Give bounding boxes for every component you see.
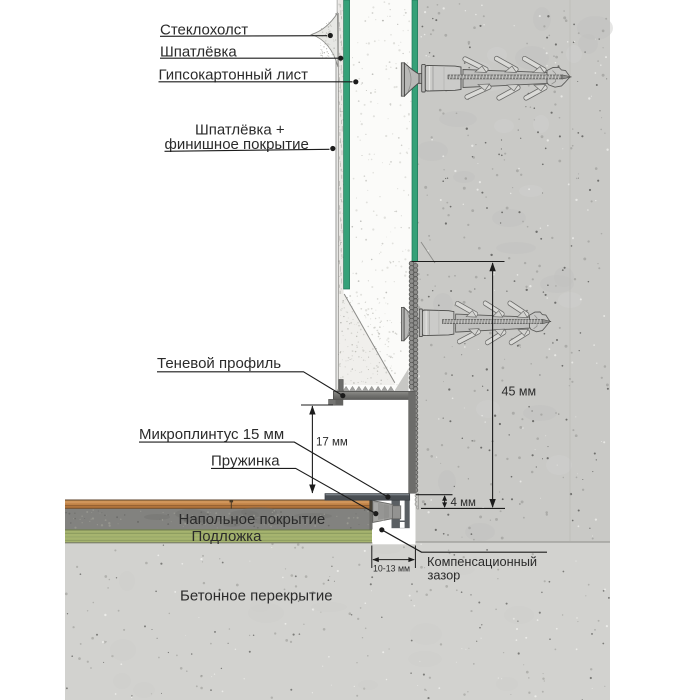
svg-text:Микроплинтус 15 мм: Микроплинтус 15 мм <box>139 426 284 443</box>
svg-text:17 мм: 17 мм <box>316 437 348 449</box>
svg-text:Подложка: Подложка <box>192 528 263 545</box>
svg-text:Бетонное перекрытие: Бетонное перекрытие <box>180 588 333 605</box>
svg-text:Теневой профиль: Теневой профиль <box>157 355 281 372</box>
svg-text:Гипсокартонный лист: Гипсокартонный лист <box>159 67 309 84</box>
svg-text:Пружинка: Пружинка <box>211 452 280 469</box>
svg-text:4 мм: 4 мм <box>451 497 476 509</box>
svg-text:10-13 мм: 10-13 мм <box>373 564 410 574</box>
svg-text:Напольное покрытие: Напольное покрытие <box>179 511 326 528</box>
svg-text:45 мм: 45 мм <box>502 385 537 399</box>
svg-text:зазор: зазор <box>428 568 461 583</box>
